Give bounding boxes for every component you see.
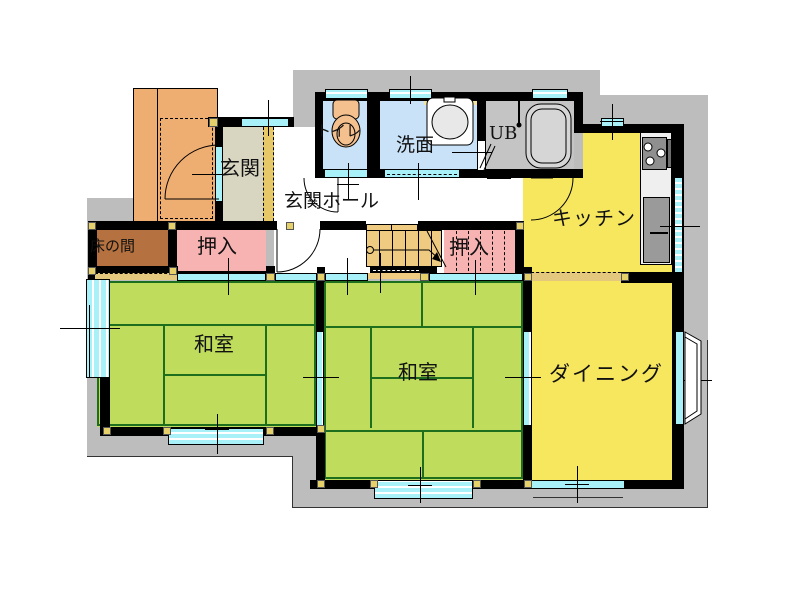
burner: [644, 143, 652, 151]
stair-arrow: [374, 250, 440, 260]
label-genkan-hall: 玄関ホール: [284, 192, 379, 211]
label-washitsu-center: 和室: [398, 362, 438, 382]
label-tokonoma: 床の間: [90, 239, 135, 254]
wash-faucet: [444, 97, 455, 102]
label-kitchen: キッチン: [552, 208, 636, 228]
bath-door: [480, 144, 495, 170]
label-unit-bath: UB: [489, 125, 517, 143]
hall-door-swing: [277, 229, 320, 272]
wash-basin: [432, 105, 468, 139]
bay-window-frame: [685, 332, 701, 424]
floor-plan: 玄関 玄関ホール トイレ 洗面 UB キッチン 押入 押入 床の間 和室 和室 …: [0, 0, 800, 600]
burner: [646, 157, 654, 165]
burner: [657, 149, 665, 157]
stair-arrow-start: [367, 247, 374, 254]
front-door-swing: [165, 145, 219, 199]
label-oshiire-left: 押入: [197, 236, 237, 256]
label-dining: ダイニング: [549, 364, 664, 385]
label-oshiire-right: 押入: [449, 237, 489, 257]
fixtures-overlay: [0, 0, 800, 600]
stair-winder: [427, 231, 446, 267]
label-toilet: トイレ: [316, 124, 361, 139]
label-washroom: 洗面: [396, 136, 434, 155]
label-genkan: 玄関: [220, 158, 260, 178]
label-washitsu-left: 和室: [194, 334, 234, 354]
